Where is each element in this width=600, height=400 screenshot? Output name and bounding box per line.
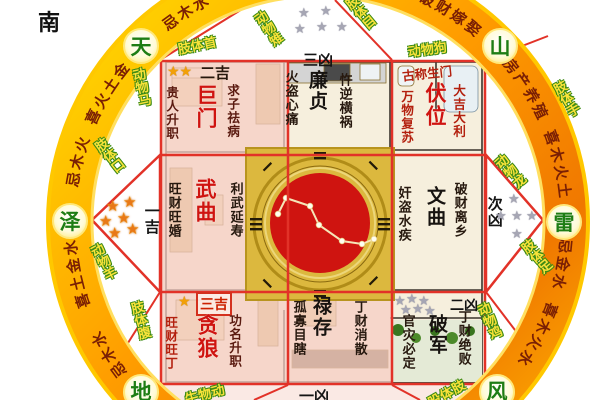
bagua-center	[246, 148, 394, 300]
cell-lucun-left-text: 孤寡目瞎	[291, 300, 305, 356]
cell-tanlang-name: 贪狼	[196, 314, 218, 360]
cell-fuwei-right-text: 大吉大利	[452, 84, 465, 138]
south-direction-label: 南	[38, 5, 60, 37]
star-icon: ★	[511, 228, 523, 241]
cell-pojun-left-text: 官灾必定	[400, 314, 414, 370]
cell-tanlang-right-text: 功名升职	[228, 314, 241, 368]
cell-tanlang-left-text: 旺财旺丁	[164, 316, 177, 370]
trigram-ze: 泽	[60, 210, 81, 234]
trigram-lei: 雷	[554, 211, 575, 235]
cell-wuqu-right-text: 利武延寿	[228, 182, 242, 238]
star-icon: ★	[126, 222, 139, 237]
trigram-feng: 风	[487, 380, 508, 400]
trigram-tian: 天	[131, 35, 153, 59]
fengshui-bagua-chart: 破财嫁娶 房产养殖 喜木火土 忌金水 喜木火水 忌木水 喜土金水 忌木火 喜火土…	[0, 0, 600, 400]
cell-tanlang-star: ★	[178, 294, 191, 310]
cell-tanlang-rating: 三吉	[196, 292, 232, 316]
cell-pojun-right-text: 丁财绝败	[456, 310, 470, 366]
cell-fuwei-left-text: 万物复苏	[400, 90, 413, 144]
cell-lianzhen-left-text: 火盗心痛	[283, 70, 297, 126]
star-icon: ★	[316, 21, 328, 34]
star-icon: ★	[495, 210, 507, 223]
star-icon: ★	[511, 210, 523, 223]
star-icon: ★	[298, 7, 310, 20]
star-icon: ★	[526, 210, 538, 223]
star-icon: ★	[508, 193, 520, 206]
cell-lianzhen-right-text: 忤逆横祸	[337, 73, 351, 129]
cell-jumen-stars: ★★	[167, 64, 192, 80]
cell-pojun-name: 破军	[426, 314, 446, 356]
cell-fuwei-name: 伏位	[424, 82, 446, 128]
trigram-di: 地	[131, 380, 152, 400]
cell-jumen-name: 巨门	[195, 84, 217, 130]
cell-lucun-right-text: 丁财消散	[352, 300, 366, 356]
star-icon: ★	[294, 23, 306, 36]
star-icon: ★	[320, 5, 332, 18]
left-diamond-rating: 一吉	[143, 203, 159, 235]
trigram-shan: 山	[490, 35, 511, 59]
star-icon: ★	[123, 195, 136, 210]
star-icon: ★	[108, 226, 121, 241]
cell-jumen-right-text: 求子祛病	[226, 84, 239, 138]
cell-wuqu-name: 武曲	[194, 178, 216, 224]
cell-jumen-left-text: 贵人升职	[165, 86, 178, 140]
cell-wenqu-name: 文曲	[424, 186, 444, 228]
cell-lianzhen-name: 廉贞	[306, 70, 326, 112]
star-icon: ★	[336, 21, 348, 34]
cell-lucun-name: 禄存	[310, 296, 330, 338]
top-wedge-rating: 三凶	[303, 49, 333, 70]
cell-jumen-rating: 二吉	[200, 62, 230, 83]
bottom-wedge-rating: 一凶	[299, 385, 329, 400]
cell-wuqu-left-text: 旺财旺婚	[166, 182, 180, 238]
cell-wenqu-right-text: 破财离乡	[452, 182, 466, 238]
cell-wenqu-left-text: 奸盗水疾	[396, 186, 410, 242]
